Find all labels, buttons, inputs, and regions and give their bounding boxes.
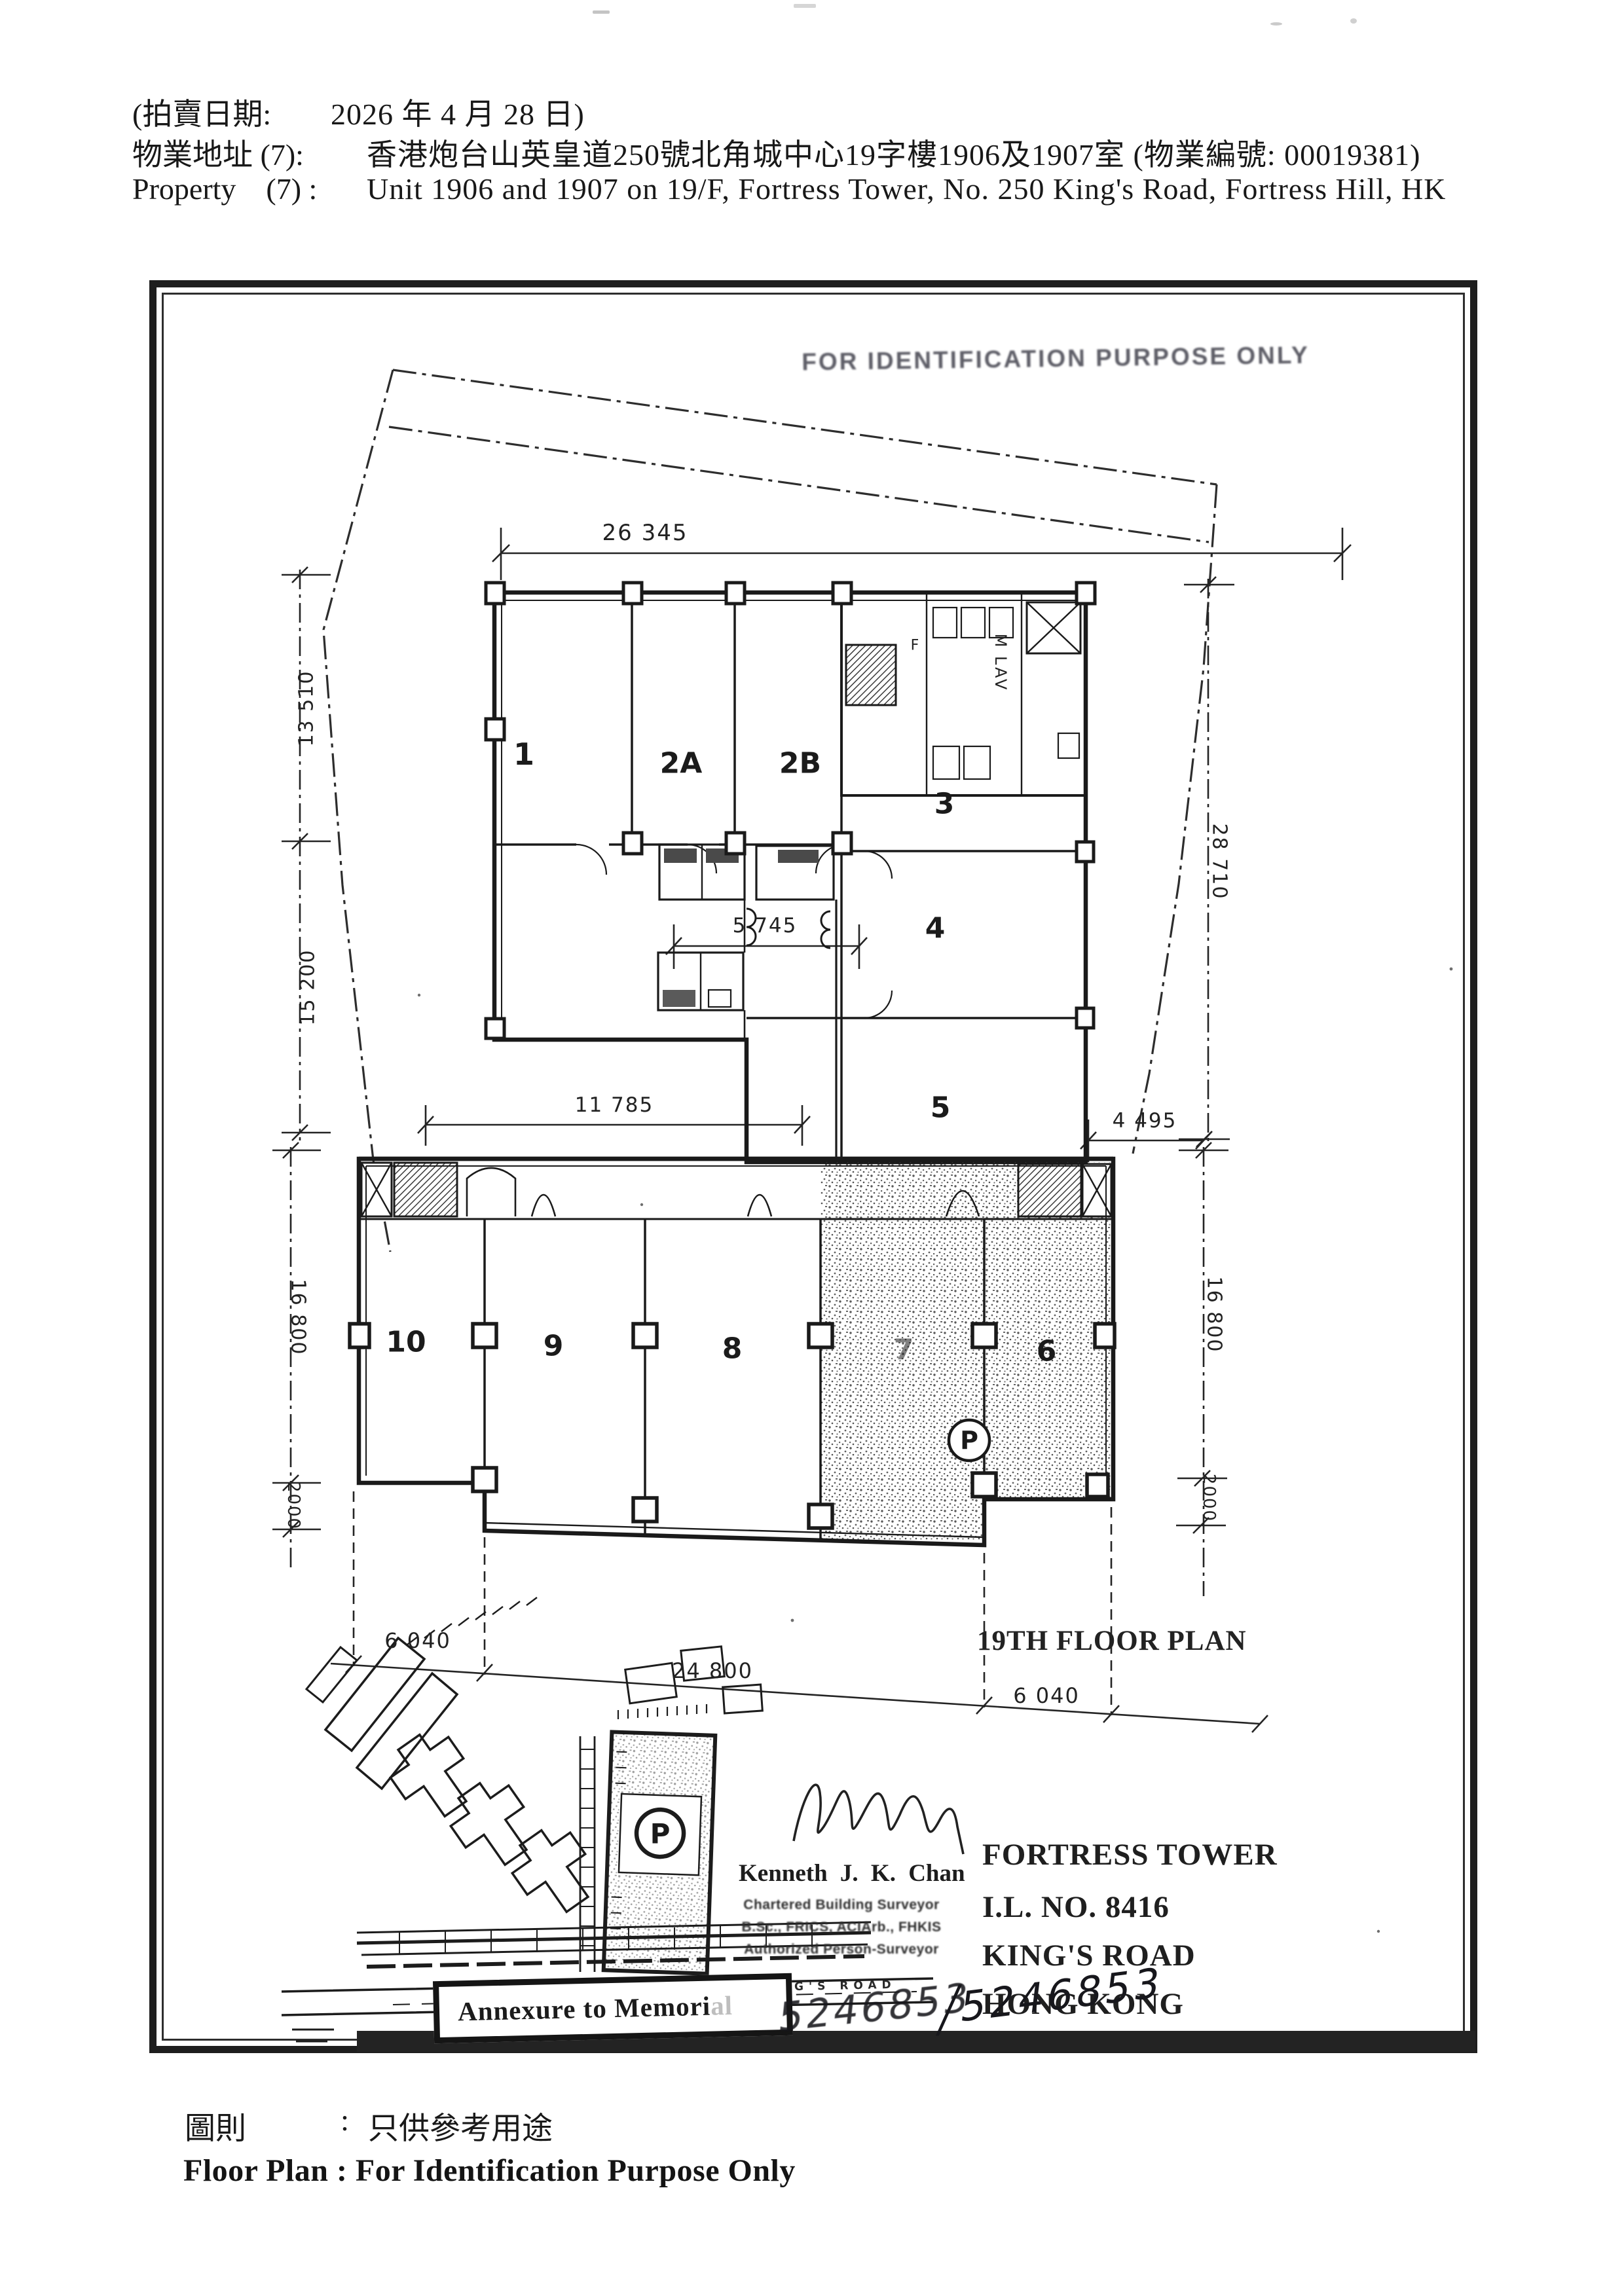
dim-bottom-right: 6 040 [1013, 1683, 1080, 1708]
dim-left-step: 2000 [284, 1482, 303, 1530]
unit-label-7: 7 [894, 1334, 914, 1367]
dimension-lines [272, 528, 1351, 1732]
annexure-text-faded: al [710, 1990, 733, 2021]
dim-mid-a: 5 745 [733, 914, 798, 938]
plan-title: 19TH FLOOR PLAN [977, 1625, 1247, 1657]
scanned-document-page: { "header": { "line1_label": "(拍賣日期:", "… [0, 0, 1624, 2296]
dim-mid-c: 4 495 [1113, 1109, 1177, 1133]
lot-number: I.L. NO. 8416 [982, 1889, 1170, 1925]
footer-zh-label: 圖則 [185, 2103, 246, 2148]
footer-zh-text: 只供參考用途 [368, 2103, 553, 2148]
dim-left-lower: 16 800 [287, 1279, 310, 1356]
unit-label-3: 3 [934, 788, 955, 821]
unit-label-4: 4 [925, 912, 946, 945]
dim-bottom-mid: 24 800 [672, 1658, 753, 1683]
unit-label-5: 5 [931, 1091, 951, 1125]
female-lavatory-label: F [911, 638, 921, 654]
parking-mark-plan: P [960, 1426, 978, 1455]
lot-boundary [323, 370, 1217, 1252]
surveyor-title-1: Chartered Building Surveyor [743, 1897, 939, 1913]
unit-label-2b: 2B [779, 747, 821, 780]
unit-label-2a: 2A [660, 747, 703, 780]
unit-label-8: 8 [722, 1332, 743, 1366]
surveyor-name: Kenneth J. K. Chan [739, 1859, 965, 1887]
annexure-text: Annexure to Memorial [458, 1990, 733, 2028]
annexure-text-legible: Annexure to Memori [458, 1991, 711, 2027]
footer-zh-colon: : [341, 2103, 349, 2138]
unit-label-6: 6 [1037, 1335, 1057, 1368]
annexure-stamp-box: Annexure to Memorial [433, 1973, 793, 2043]
male-lavatory-label: M LAV [991, 634, 1010, 692]
dim-bottom-left: 6 040 [384, 1628, 451, 1653]
dim-right-upper: 28 710 [1208, 824, 1231, 900]
signature-scribble [794, 1785, 963, 1854]
unit-label-10: 10 [386, 1326, 426, 1359]
dim-right-step: 2000 [1199, 1474, 1219, 1522]
dim-left-upper: 13 510 [295, 670, 318, 747]
dim-top: 26 345 [602, 520, 688, 546]
building-name: FORTRESS TOWER [982, 1837, 1278, 1872]
dim-mid-b: 11 785 [575, 1093, 654, 1117]
unit-label-1: 1 [513, 737, 534, 772]
footer-en-text: Floor Plan : For Identification Purpose … [183, 2153, 796, 2189]
surveyor-title-2: B.Sc., FRICS, ACIArb., FHKIS [742, 1920, 942, 1935]
dim-right-lower: 16 800 [1203, 1277, 1226, 1353]
parking-mark-sitemap: P [650, 1818, 671, 1850]
unit-label-9: 9 [544, 1330, 564, 1363]
site-map [282, 1597, 933, 2041]
surveyor-title-3: Authorized Person-Surveyor [744, 1942, 939, 1958]
dim-left-mid: 15 200 [297, 949, 320, 1026]
